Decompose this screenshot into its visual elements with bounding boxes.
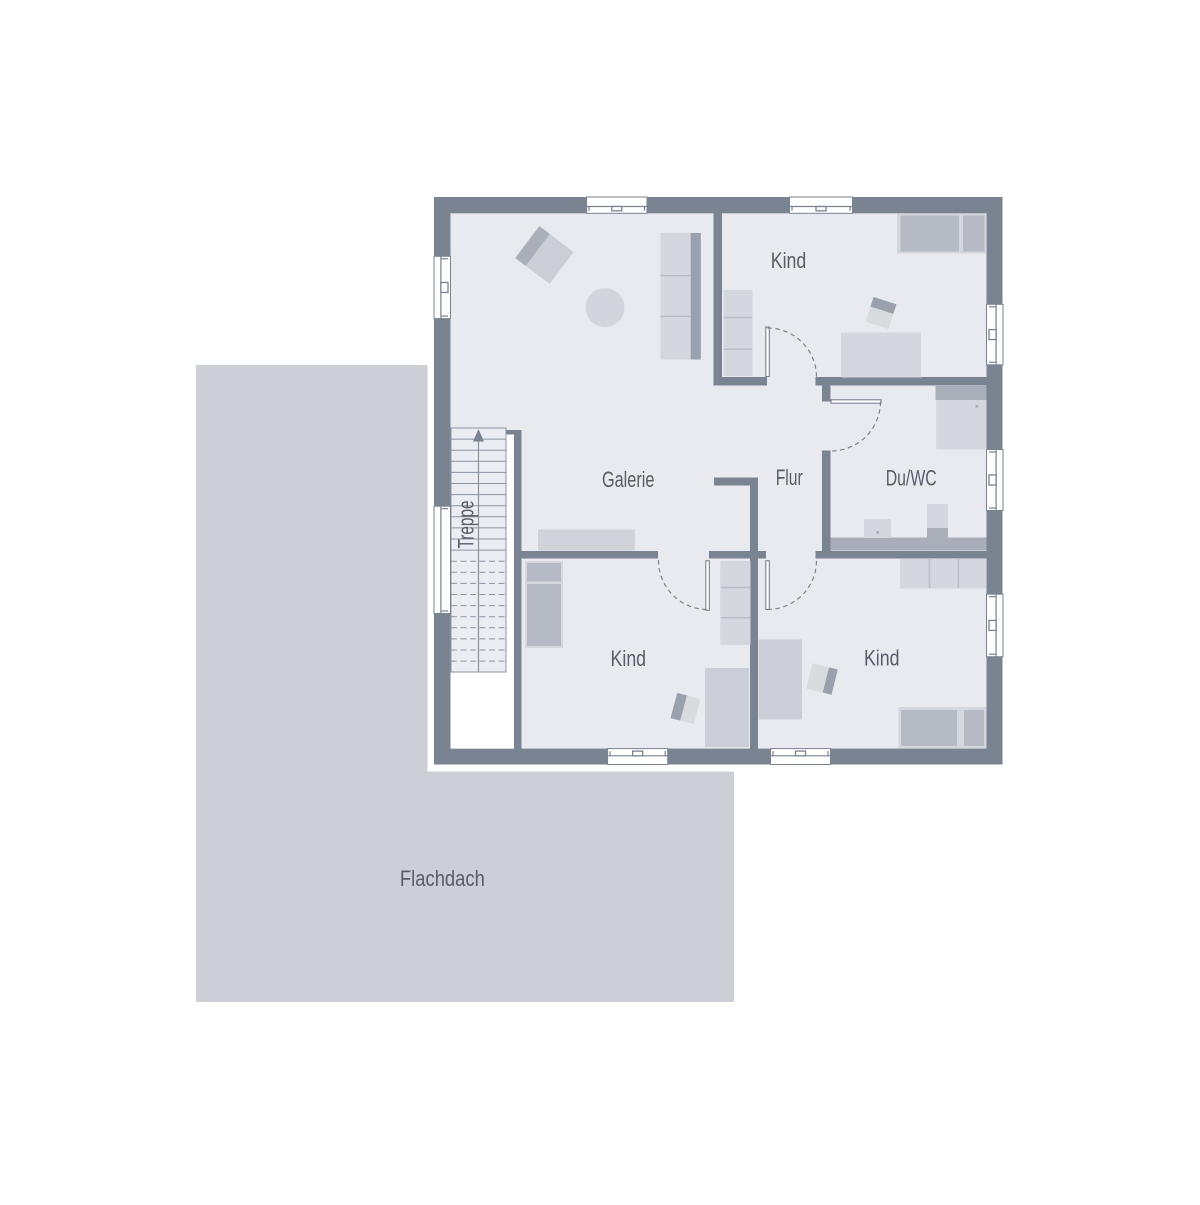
svg-text:Flur: Flur [776,465,803,490]
svg-text:Kind: Kind [771,248,807,273]
svg-text:Du/WC: Du/WC [886,466,937,491]
svg-text:Galerie: Galerie [602,467,655,492]
svg-text:Kind: Kind [611,646,647,671]
svg-text:Flachdach: Flachdach [400,866,485,891]
svg-text:Treppe: Treppe [454,501,479,549]
svg-text:Kind: Kind [864,646,900,671]
